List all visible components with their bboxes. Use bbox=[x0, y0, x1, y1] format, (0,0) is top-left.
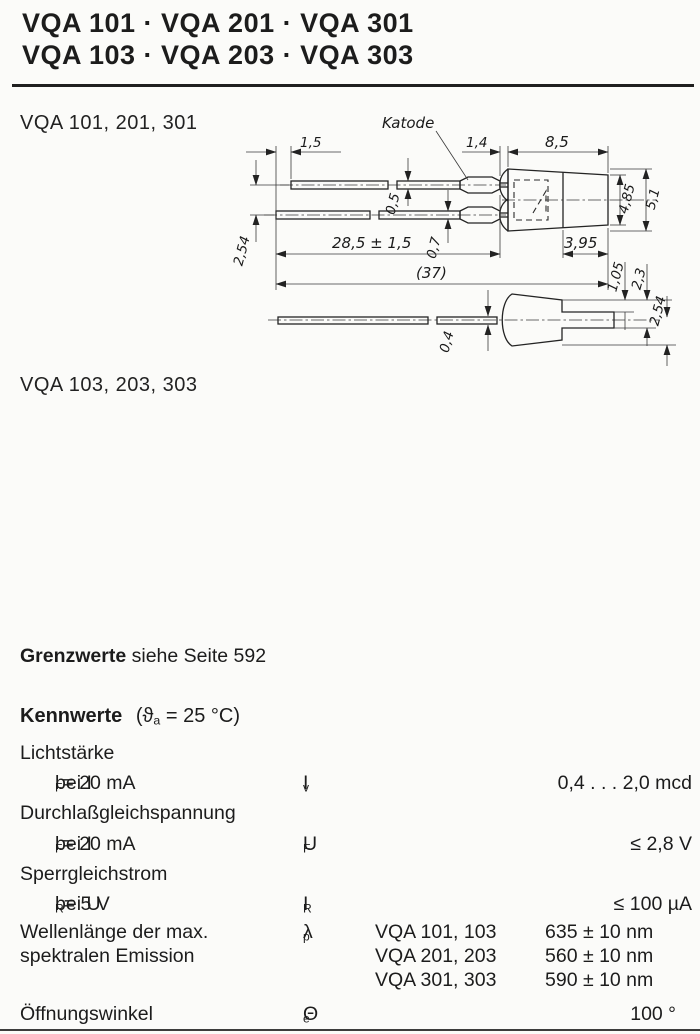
grenzwerte-label: Grenzwerte bbox=[20, 645, 126, 667]
param-name-row: Lichtstärke bbox=[20, 742, 700, 768]
kennwerte-label: Kennwerte bbox=[20, 705, 122, 727]
dim-label: 0,4 bbox=[437, 330, 458, 355]
param-value-row: bei IF = 20 mA Iv 0,4 . . . 2,0 mcd bbox=[20, 772, 700, 798]
variant-types: VQA 301, 303 bbox=[375, 969, 496, 992]
param-condition: bei IF = 20 mA bbox=[55, 833, 62, 856]
param-value-row: spektralen Emission VQA 201, 203 560 ± 1… bbox=[20, 945, 700, 971]
param-value-row: bei UR = 5 V IR ≤ 100 µA bbox=[20, 893, 700, 919]
param-name: Durchlaßgleichspannung bbox=[20, 802, 236, 825]
dim-label: 2,3 bbox=[629, 267, 650, 292]
param-name: Sperrgleichstrom bbox=[20, 863, 167, 886]
param-condition: bei UR = 5 V bbox=[55, 893, 64, 916]
param-value: 100 ° bbox=[630, 1003, 676, 1026]
led-top-view bbox=[276, 169, 608, 231]
datasheet-page: VQA 101 · VQA 201 · VQA 301 VQA 103 · VQ… bbox=[0, 0, 700, 1034]
dim-label: 0,7 bbox=[424, 235, 445, 260]
variant-value: 635 ± 10 nm bbox=[545, 921, 653, 944]
param-symbol: Θe bbox=[303, 1003, 310, 1026]
dim-label: 1,5 bbox=[300, 135, 321, 151]
dim-label: 2,54 bbox=[647, 294, 670, 327]
grenzwerte-rest: siehe Seite 592 bbox=[132, 645, 266, 667]
dim-label: 2,54 bbox=[231, 234, 254, 267]
dim-label: 28,5 ± 1,5 bbox=[332, 234, 411, 252]
variant-value: 560 ± 10 nm bbox=[545, 945, 653, 968]
param-value-row: VQA 301, 303 590 ± 10 nm bbox=[20, 969, 700, 995]
param-name-row: Sperrgleichstrom bbox=[20, 863, 700, 889]
variant-types: VQA 201, 203 bbox=[375, 945, 496, 968]
param-value-row: bei IF = 20 mA UF ≤ 2,8 V bbox=[20, 833, 700, 859]
drawing1-katode-label: Katode bbox=[382, 114, 434, 132]
param-name: Lichtstärke bbox=[20, 742, 114, 765]
dim-label: 4,85 bbox=[616, 182, 639, 215]
param-symbol: IR bbox=[303, 893, 312, 916]
kennwerte-heading: Kennwerte (ϑa = 25 °C) bbox=[20, 705, 240, 728]
param-name: Wellenlänge der max. bbox=[20, 921, 208, 944]
drawing1-figure: Katode 1,5 1,4 8,5 2,54 0,5 0,7 bbox=[0, 100, 700, 372]
dim-label: 1,4 bbox=[466, 135, 487, 151]
footer-rule bbox=[0, 1029, 700, 1031]
param-value-row: Wellenlänge der max. λp VQA 101, 103 635… bbox=[20, 921, 700, 947]
drawing2-figure: Katode (2) 17,5 1,7 max. 8,5 2,54 bbox=[0, 372, 700, 632]
variant-types: VQA 101, 103 bbox=[375, 921, 496, 944]
param-name-row: Durchlaßgleichspannung bbox=[20, 802, 700, 828]
kennwerte-condition: (ϑa = 25 °C) bbox=[136, 705, 240, 727]
param-value: ≤ 2,8 V bbox=[630, 833, 692, 856]
param-symbol: UF bbox=[303, 833, 310, 856]
grenzwerte-line: Grenzwerte siehe Seite 592 bbox=[20, 645, 266, 668]
param-name: spektralen Emission bbox=[20, 945, 195, 968]
param-value: 0,4 . . . 2,0 mcd bbox=[558, 772, 692, 795]
param-symbol: λp bbox=[303, 921, 310, 944]
header-rule bbox=[12, 84, 694, 87]
dim-label: 0,5 bbox=[383, 192, 404, 217]
dim-label: (37) bbox=[416, 264, 447, 282]
page-title-line1: VQA 101 · VQA 201 · VQA 301 bbox=[22, 8, 414, 39]
dim-label: 8,5 bbox=[545, 133, 569, 151]
param-value-row: Öffnungswinkel Θe 100 ° bbox=[20, 1003, 700, 1029]
dim-label: 3,95 bbox=[564, 234, 597, 252]
param-name: Öffnungswinkel bbox=[20, 1003, 153, 1026]
variant-value: 590 ± 10 nm bbox=[545, 969, 653, 992]
param-symbol: Iv bbox=[303, 772, 309, 795]
page-title-line2: VQA 103 · VQA 203 · VQA 303 bbox=[22, 40, 414, 71]
param-value: ≤ 100 µA bbox=[614, 893, 692, 916]
param-condition: bei IF = 20 mA bbox=[55, 772, 62, 795]
